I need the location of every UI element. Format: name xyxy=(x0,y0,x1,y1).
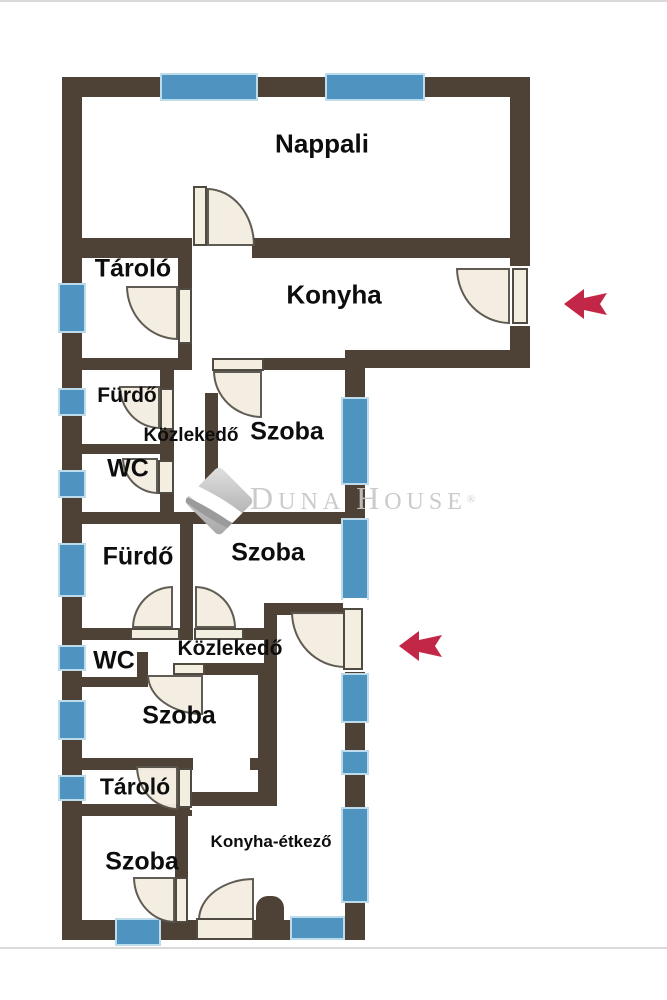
room-label-szoba-2: Szoba xyxy=(231,539,305,568)
window xyxy=(58,283,86,333)
window xyxy=(160,73,258,101)
wall-segment xyxy=(180,524,193,628)
door-swing-arc xyxy=(291,612,345,668)
floor-plan: Nappali Tároló Konyha Fürdő Közlekedő Sz… xyxy=(0,0,667,1000)
wall-segment xyxy=(160,494,174,524)
door-leaf xyxy=(196,918,254,940)
window xyxy=(325,73,425,101)
page-border-top xyxy=(0,0,667,2)
door-leaf xyxy=(343,608,363,670)
window xyxy=(115,918,161,946)
wall-segment xyxy=(62,677,148,687)
door-leaf xyxy=(193,186,207,246)
wall-segment xyxy=(345,350,530,368)
registered-mark: ® xyxy=(467,494,475,506)
wall-segment xyxy=(137,652,148,677)
wall-segment xyxy=(62,77,530,97)
door-leaf xyxy=(178,768,192,808)
door-swing-arc xyxy=(133,877,175,923)
watermark-text: H xyxy=(356,480,384,516)
wall-segment xyxy=(264,358,345,370)
room-label-nappali: Nappali xyxy=(275,129,369,160)
page-border-bottom xyxy=(0,947,667,949)
window xyxy=(58,388,86,416)
door-leaf xyxy=(160,388,174,430)
door-leaf xyxy=(173,663,205,675)
room-label-konyha: Konyha xyxy=(286,280,381,311)
watermark-spacer xyxy=(345,489,356,515)
window xyxy=(58,775,86,801)
door-swing-arc xyxy=(213,371,262,418)
wall-segment xyxy=(252,238,530,258)
watermark-text: OUSE xyxy=(384,489,467,515)
wall-segment xyxy=(178,342,192,370)
window xyxy=(58,470,86,498)
window xyxy=(58,645,86,671)
room-label-szoba-4: Szoba xyxy=(105,848,179,877)
wall-segment xyxy=(160,370,174,388)
room-label-wc-1: WC xyxy=(107,455,149,484)
watermark-brand: DUNA HOUSE® xyxy=(250,480,475,517)
watermark-diamond-icon xyxy=(184,466,255,537)
room-label-kozlekedo-2: Közlekedő xyxy=(177,637,282,661)
window xyxy=(341,673,369,723)
wall-segment xyxy=(258,663,277,806)
door-swing-arc xyxy=(207,188,255,246)
door-swing-arc xyxy=(456,268,510,324)
door-leaf xyxy=(512,268,528,324)
room-label-szoba-1: Szoba xyxy=(250,418,324,447)
window xyxy=(58,543,86,597)
watermark-text: D xyxy=(250,480,278,516)
door-leaf xyxy=(158,460,174,494)
room-label-szoba-3: Szoba xyxy=(142,702,216,731)
door-swing-arc xyxy=(132,586,173,628)
room-label-furdo-2: Fürdő xyxy=(103,543,174,572)
door-swing-arc xyxy=(126,286,178,340)
window xyxy=(341,518,369,600)
room-label-furdo-1: Fürdő xyxy=(97,384,156,408)
door-leaf xyxy=(178,288,192,344)
room-label-tarolo-1: Tároló xyxy=(95,255,171,284)
room-label-wc-2: WC xyxy=(93,647,135,676)
window xyxy=(341,397,369,485)
window xyxy=(341,807,369,903)
window xyxy=(58,700,86,740)
window xyxy=(290,916,345,940)
door-leaf xyxy=(175,877,188,923)
door-post-fixture xyxy=(256,896,284,940)
entrance-arrow-icon xyxy=(399,630,447,662)
door-leaf xyxy=(130,628,180,640)
entrance-arrow-icon xyxy=(564,288,612,320)
room-label-konyha-etkezo: Konyha-étkező xyxy=(211,832,332,852)
room-label-tarolo-2: Tároló xyxy=(100,774,170,801)
door-swing-arc xyxy=(198,878,254,920)
window xyxy=(341,750,369,775)
wall-segment xyxy=(62,358,192,370)
watermark-logo xyxy=(186,468,252,534)
room-label-kozlekedo-1: Közlekedő xyxy=(143,425,238,447)
door-leaf xyxy=(212,358,264,371)
wall-segment xyxy=(178,255,192,290)
watermark-text: UNA xyxy=(278,489,345,515)
door-swing-arc xyxy=(195,586,236,628)
wall-segment xyxy=(62,628,130,640)
